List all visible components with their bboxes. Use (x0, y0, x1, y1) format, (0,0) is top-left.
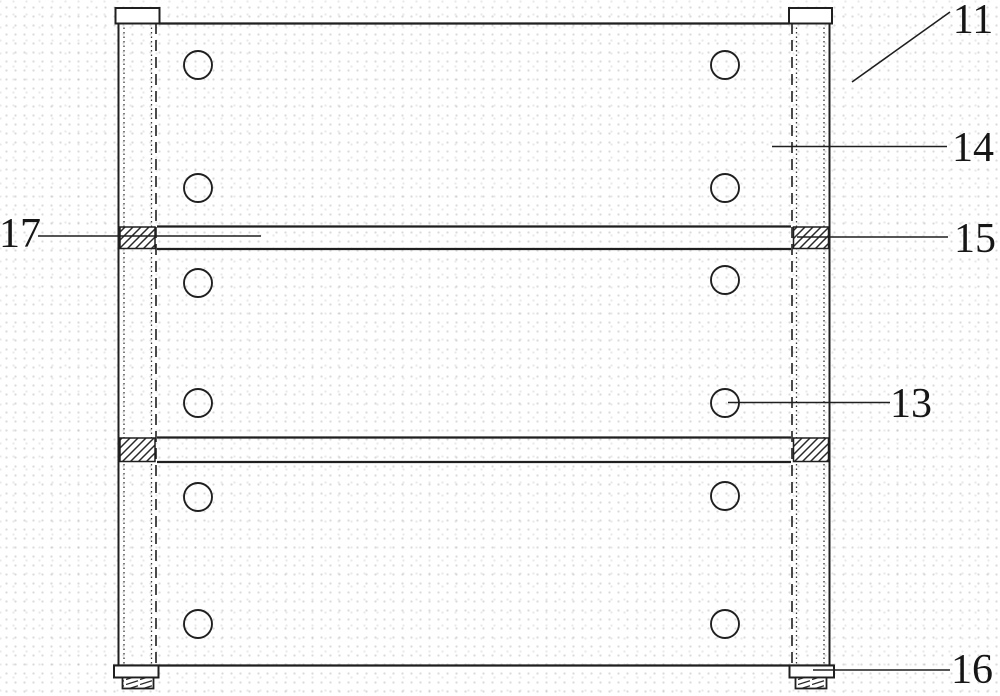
hole-right-2 (711, 174, 739, 202)
left-rod-foot-washer (114, 666, 159, 678)
hole-left-6 (184, 610, 212, 638)
plate-holes (184, 51, 739, 638)
right-rod-foot-washer (790, 666, 835, 678)
plate-upper (157, 24, 791, 227)
hole-left-3 (184, 269, 212, 297)
ref-label-17: 17 (0, 211, 41, 257)
left-rod-foot-nut (123, 678, 154, 689)
reference-numerals: 11 14 15 13 16 17 (0, 0, 996, 693)
left-rod-cap (116, 8, 160, 24)
right-rod-cap (789, 8, 832, 24)
right-rod-nut-lower (794, 438, 829, 462)
hole-right-6 (711, 610, 739, 638)
ref-label-13: 13 (890, 381, 932, 427)
leader-lines (38, 12, 950, 670)
ref-label-14: 14 (952, 125, 994, 171)
left-rod-nut-lower (120, 438, 155, 462)
right-rod-foot-nut (796, 678, 827, 689)
hole-right-3 (711, 266, 739, 294)
hole-left-5 (184, 483, 212, 511)
hole-right-1 (711, 51, 739, 79)
ref-label-15: 15 (954, 216, 996, 262)
hole-left-2 (184, 174, 212, 202)
ref-label-16: 16 (951, 647, 993, 693)
hole-right-5 (711, 482, 739, 510)
plate-lower (113, 462, 834, 666)
ref-label-11: 11 (953, 0, 993, 43)
hole-left-1 (184, 51, 212, 79)
assembly-drawing: 11 14 15 13 16 17 (0, 0, 1000, 696)
hole-left-4 (184, 389, 212, 417)
right-rod (789, 8, 834, 689)
plate-middle (157, 249, 791, 438)
leader-line-11 (852, 12, 950, 82)
left-rod-nut-upper (120, 227, 155, 249)
left-rod (114, 8, 160, 689)
patent-figure-canvas: 11 14 15 13 16 17 (0, 0, 1000, 696)
